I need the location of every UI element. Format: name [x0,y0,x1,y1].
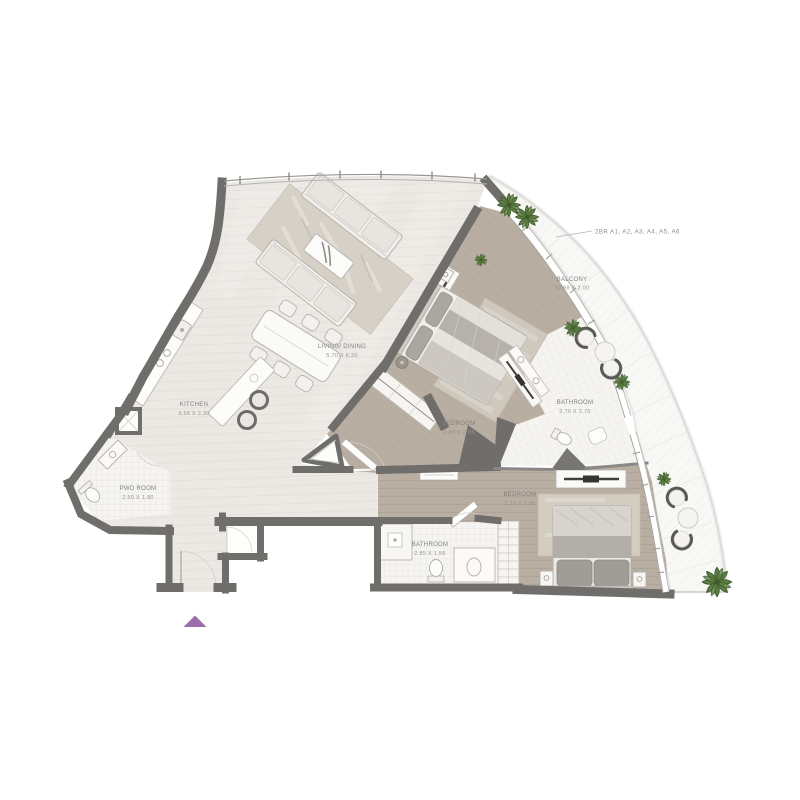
svg-text:BEDROOM: BEDROOM [503,492,536,498]
svg-text:5.70 X 6.20: 5.70 X 6.20 [326,353,357,359]
svg-text:3.70 X 2.70: 3.70 X 2.70 [559,409,590,415]
svg-text:BATHROOM: BATHROOM [412,542,449,548]
svg-text:2.85 X 1.56: 2.85 X 1.56 [414,551,445,557]
svg-text:BATHROOM: BATHROOM [557,400,594,406]
svg-text:2.80 X 2.95: 2.80 X 2.95 [443,430,474,436]
svg-text:12.98 X 2.00: 12.98 X 2.00 [555,286,590,292]
svg-text:LIVING/ DINING: LIVING/ DINING [318,344,366,350]
svg-text:KITCHEN: KITCHEN [180,402,208,408]
svg-text:3.56 X 2.30: 3.56 X 2.30 [178,411,209,417]
svg-text:BALCONY: BALCONY [557,277,588,283]
svg-text:BEDROOM: BEDROOM [442,421,475,427]
svg-text:2.50 X 1.90: 2.50 X 1.90 [122,495,153,501]
svg-text:PWD ROOM: PWD ROOM [120,486,157,492]
svg-text:2BR A1, A2, A3, A4, A5, A6: 2BR A1, A2, A3, A4, A5, A6 [595,229,680,236]
svg-text:3.16 X 3.08: 3.16 X 3.08 [504,501,535,507]
